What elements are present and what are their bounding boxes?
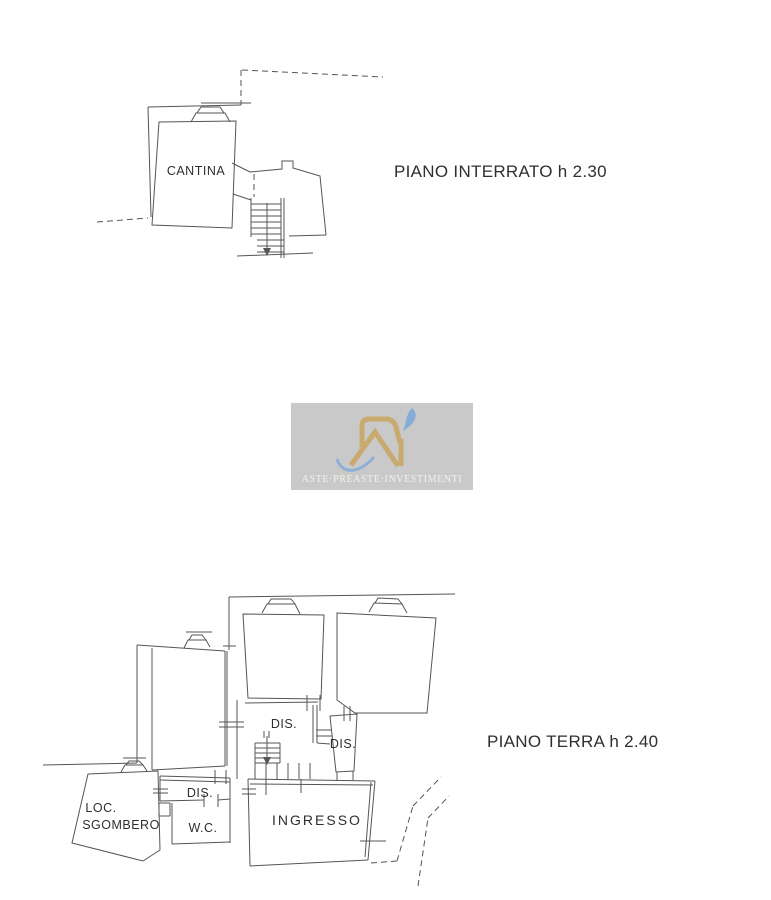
room-label-ingresso: INGRESSO — [272, 812, 362, 828]
floorplan-page: CANTINA PIANO INTERRATO h 2.30 — [0, 0, 771, 900]
logo-flame-icon — [403, 408, 416, 431]
basement-outer-wall — [148, 103, 251, 217]
watermark-caption: ASTE·PREASTE·INVESTIMENTI — [302, 474, 463, 485]
basement-stair-room-outline — [232, 161, 326, 236]
room-label-dis-bottom: DIS. — [187, 786, 213, 800]
room-label-dis-middle: DIS. — [271, 717, 297, 731]
basement-dashed-boundary — [97, 70, 383, 222]
ground-outer-boundary — [43, 594, 455, 765]
room-label-sgombero: SGOMBERO — [82, 818, 160, 832]
dis-middle-room-walls — [219, 695, 332, 779]
ground-floor-title: PIANO TERRA h 2.40 — [487, 732, 658, 751]
upper-right-room-outline — [337, 613, 436, 713]
right-room-window-symbol — [369, 598, 407, 613]
ground-staircase — [255, 731, 310, 795]
room-label-dis-right: DIS. — [330, 737, 356, 751]
ground-dashed-boundary — [371, 777, 449, 886]
room-label-loc: LOC. — [85, 801, 116, 815]
left-tall-room-outline — [137, 645, 227, 770]
sgombero-window-symbol — [121, 758, 147, 772]
middle-room-window-symbol — [262, 599, 300, 614]
loc-sgombero-room-outline — [72, 771, 160, 861]
basement-floor-title: PIANO INTERRATO h 2.30 — [394, 162, 607, 181]
left-room-window-symbol — [184, 632, 212, 648]
watermark-badge: ASTE·PREASTE·INVESTIMENTI — [291, 403, 473, 490]
room-label-cantina: CANTINA — [167, 164, 226, 178]
basement-plan: CANTINA PIANO INTERRATO h 2.30 — [97, 70, 607, 258]
ground-floor-plan: DIS. DIS. DIS. W.C. INGRESSO LOC. SGOMBE… — [43, 594, 658, 886]
brand-logo-icon — [337, 408, 416, 470]
upper-middle-room-outline — [243, 614, 324, 703]
basement-window-symbol — [191, 107, 230, 122]
room-label-wc: W.C. — [188, 821, 217, 835]
basement-staircase — [237, 198, 313, 258]
